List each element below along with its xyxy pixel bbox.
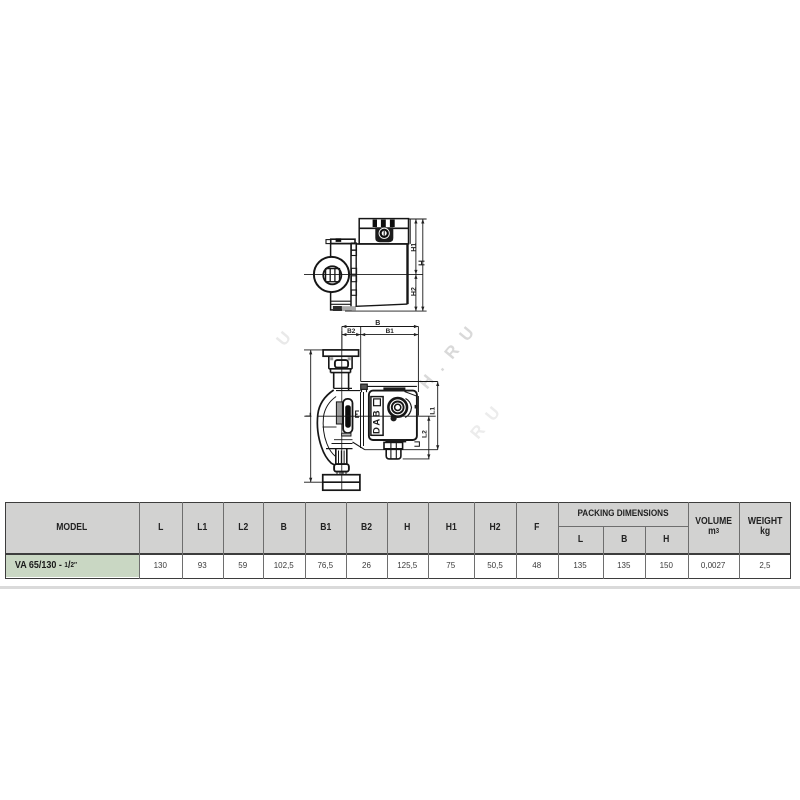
svg-text:Н.RU: Н.RU [416,315,486,393]
svg-text:H2: H2 [411,287,418,296]
svg-text:L1: L1 [429,407,436,415]
svg-text:B2: B2 [347,328,356,335]
svg-text:B1: B1 [386,328,395,335]
svg-text:U: U [273,320,303,350]
svg-text:B: B [375,320,380,327]
svg-text:L2: L2 [422,430,429,438]
svg-text:RU: RU [467,395,511,443]
svg-text:L: L [303,412,312,417]
svg-text:H: H [417,260,426,266]
svg-text:H1: H1 [411,243,418,252]
svg-text:DAB: DAB [372,409,383,434]
